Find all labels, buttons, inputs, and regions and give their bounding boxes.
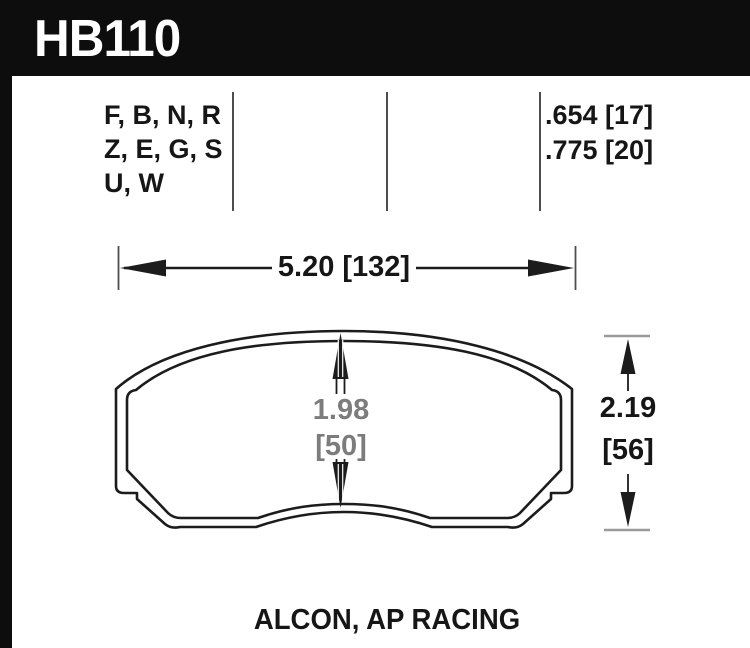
table-divider-3 [539,92,541,211]
pad-thicknesses: .654 [17] .775 [20] [545,98,653,168]
compound-line-2: Z, E, G, S [104,132,223,166]
brake-pad-spec-sheet: HB110 F, B, N, R Z, E, G, S U, W .654 [1… [0,0,750,648]
thickness-line-2: .775 [20] [545,133,653,168]
overall-height-dimension-graphics [604,336,650,530]
thickness-line-1: .654 [17] [545,98,653,133]
compound-line-3: U, W [104,166,223,200]
pad-height-mm: [50] [291,430,391,463]
table-divider-2 [386,92,388,211]
overall-height-value: 2.19 [578,392,678,425]
overall-height-mm: [56] [578,434,678,467]
width-dimension-label: 5.20 [132] [264,251,424,284]
left-frame-border [0,0,12,648]
caliper-applications: ALCON, AP RACING [197,604,577,637]
part-number: HB110 [34,9,180,69]
pad-height-value: 1.98 [291,394,391,427]
compound-codes: F, B, N, R Z, E, G, S U, W [104,98,223,200]
compound-line-1: F, B, N, R [104,98,223,132]
table-divider-1 [232,92,234,211]
